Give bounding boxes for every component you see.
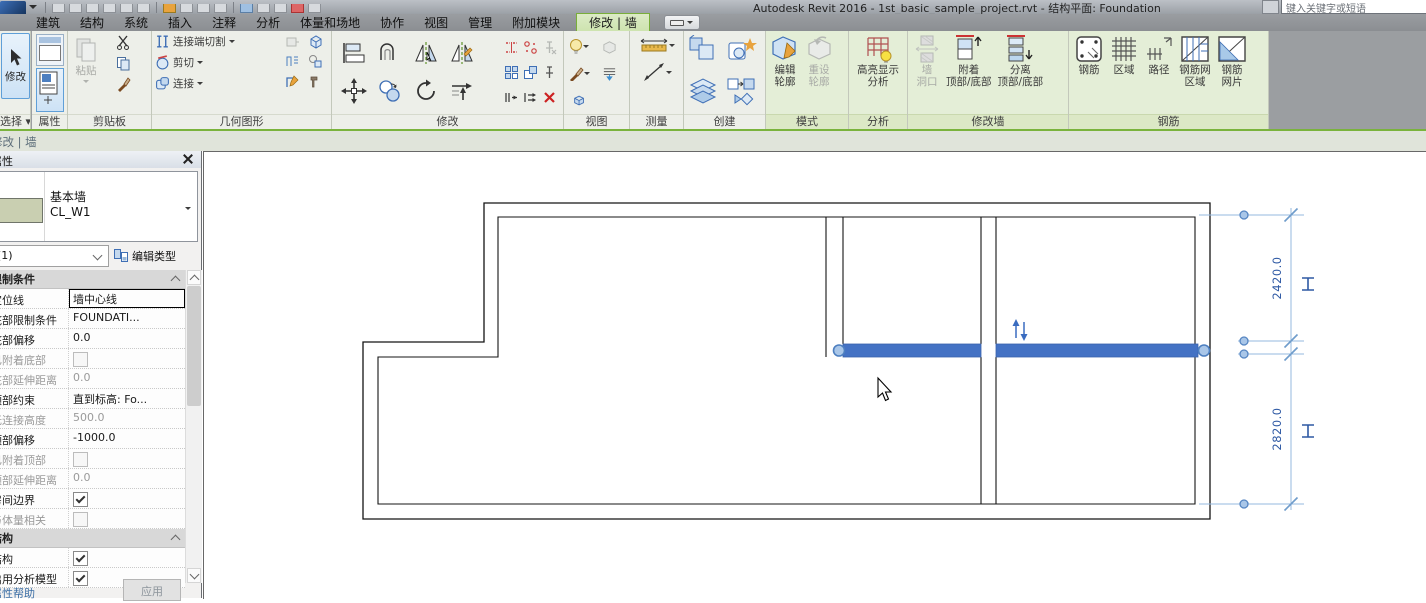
chevron-down-icon — [83, 80, 89, 86]
tab-4[interactable]: 注释 — [202, 13, 246, 33]
rebar-button[interactable]: 钢筋 — [1074, 34, 1104, 115]
panel-label-rebar[interactable]: 钢筋 — [1069, 114, 1268, 129]
ribbon-collapse-button[interactable] — [664, 15, 700, 30]
panel-mode: 编辑轮廓 重设轮廓 模式 — [766, 31, 849, 129]
unjoin-icon[interactable] — [308, 54, 323, 69]
chevron-down-icon — [197, 82, 203, 88]
ribbon-collapse-icon — [670, 20, 684, 26]
tab-0[interactable]: 建筑 — [26, 13, 70, 33]
property-value: 500.0 — [69, 409, 185, 428]
wall-end-grip[interactable] — [1199, 345, 1210, 356]
wall-opening-icon — [914, 34, 940, 64]
property-value[interactable] — [69, 548, 185, 567]
mirror-draw-axis-icon[interactable] — [449, 40, 475, 66]
search-go-button[interactable] — [1262, 0, 1279, 14]
panel-rebar: 钢筋 区域 路径 钢筋网区域 — [1069, 31, 1269, 129]
chevron-down-icon — [666, 71, 672, 77]
property-label: 底部偏移 — [0, 329, 69, 348]
properties-header[interactable]: 属性 — [0, 151, 201, 168]
fabric-area-button[interactable]: 钢筋网区域 — [1179, 34, 1211, 115]
chevron-down-icon — [687, 21, 693, 27]
wall-type-preview-swatch — [0, 198, 43, 223]
property-value — [69, 449, 185, 468]
plan-walls[interactable] — [363, 203, 1210, 519]
search-input[interactable]: 键入关键字或短语 — [1281, 0, 1426, 14]
tab-3[interactable]: 插入 — [158, 13, 202, 33]
create-group-icon[interactable] — [687, 75, 719, 107]
rebar-icon — [1074, 34, 1104, 64]
create-parts-icon[interactable] — [687, 35, 719, 67]
property-label: 无连接高度 — [0, 409, 69, 428]
hammer-icon[interactable] — [308, 74, 323, 89]
chevron-down-icon — [197, 61, 203, 67]
chevron-down-icon — [93, 251, 103, 261]
scroll-down-button[interactable] — [187, 568, 201, 583]
property-row: 与体量相关 — [0, 509, 185, 529]
type-family-name: 基本墙 — [50, 188, 86, 205]
detach-top-base-button[interactable]: 分离顶部/底部 — [998, 34, 1044, 115]
section-header[interactable]: 结构 — [0, 529, 185, 548]
dimension-grips[interactable] — [1240, 211, 1248, 508]
move-icon[interactable] — [341, 78, 367, 104]
copy-element-icon[interactable] — [377, 78, 403, 104]
checkbox — [73, 352, 88, 367]
property-value[interactable]: 墙中心线 — [69, 289, 185, 308]
edit-type-button[interactable]: 编辑类型 — [113, 245, 198, 267]
property-label: 顶部约束 — [0, 389, 69, 408]
chevron-down-icon — [229, 40, 235, 46]
property-row: 定位线墙中心线 — [0, 289, 185, 309]
chevron-down-icon — [669, 44, 675, 50]
panel-properties: 属性 — [32, 31, 68, 129]
scroll-up-button[interactable] — [187, 270, 201, 285]
align-icon[interactable] — [341, 40, 367, 66]
property-label: 底部限制条件 — [0, 309, 69, 328]
properties-scrollbar[interactable] — [185, 270, 202, 583]
chevron-down-icon — [583, 45, 589, 51]
checkbox[interactable] — [73, 551, 88, 566]
chevron-down-icon[interactable] — [185, 207, 191, 213]
panel-label-geometry[interactable]: 几何图形 — [152, 114, 331, 129]
panel-label-measure[interactable]: 测量 — [630, 114, 683, 129]
panel-label-select[interactable]: 选择 ▾ — [0, 115, 30, 128]
property-label: 已附着顶部 — [0, 449, 69, 468]
rebar-path-icon — [1144, 34, 1174, 64]
panel-label-analysis[interactable]: 分析 — [849, 114, 907, 129]
close-icon[interactable] — [183, 154, 193, 164]
property-row: 底部限制条件FOUNDATI... — [0, 309, 185, 329]
drawing-canvas[interactable]: 2420.0 2820.0 — [203, 151, 1426, 599]
cutaway-icon[interactable] — [602, 39, 617, 54]
create-similar-icon[interactable] — [725, 75, 757, 107]
cube-icon[interactable] — [308, 34, 323, 49]
property-row: 顶部约束直到标高: Fo... — [0, 389, 185, 409]
panel-create: 创建 — [684, 31, 766, 129]
wall-sweep-icon[interactable] — [285, 54, 300, 69]
tab-2[interactable]: 系统 — [114, 13, 158, 33]
attach-top-base-icon — [952, 34, 986, 64]
property-label: 顶部延伸距离 — [0, 469, 69, 488]
floor-plan: 2420.0 2820.0 — [204, 152, 1426, 599]
property-value[interactable]: 0.0 — [69, 329, 185, 348]
selection-box-icon[interactable] — [572, 93, 587, 108]
measure-button[interactable] — [639, 37, 675, 53]
dimension-annotation[interactable]: 2420.0 2820.0 — [1199, 208, 1314, 511]
trim-extend-corner-icon[interactable] — [449, 78, 475, 104]
property-value[interactable]: 直到标高: Fo... — [69, 389, 185, 408]
property-value[interactable]: -1000.0 — [69, 429, 185, 448]
tab-7[interactable]: 协作 — [370, 13, 414, 33]
panel-view: 视图 — [564, 31, 630, 129]
wall-opening-button[interactable]: 墙洞口 — [914, 34, 940, 115]
revit-logo[interactable] — [0, 1, 26, 14]
property-row: 底部延伸距离0.0 — [0, 369, 185, 389]
panel-measure: 测量 — [630, 31, 684, 129]
mirror-pick-axis-icon[interactable] — [413, 40, 439, 66]
modify-tool-button[interactable]: 修改 — [1, 33, 30, 99]
highlight-analysis-button[interactable]: 高亮显示分析 — [857, 34, 899, 115]
property-grid: 限制条件定位线墙中心线底部限制条件FOUNDATI...底部偏移0.0已附着底部… — [0, 270, 185, 588]
property-value: 0.0 — [69, 369, 185, 388]
tab-1[interactable]: 结构 — [70, 13, 114, 33]
property-row: 已附着底部 — [0, 349, 185, 369]
checkbox[interactable] — [73, 492, 88, 507]
cut-scissors-icon[interactable] — [116, 35, 131, 50]
tab-list: 建筑结构系统插入注释分析体量和场地协作视图管理附加模块 — [26, 13, 570, 33]
panel-analysis: 高亮显示分析 分析 — [849, 31, 908, 129]
qat-separator — [233, 2, 234, 13]
properties-window-button[interactable] — [36, 68, 64, 112]
chevron-down-icon — [584, 72, 590, 78]
array-icon[interactable] — [504, 65, 519, 80]
demolish-icon[interactable] — [285, 34, 300, 49]
properties-window-icon — [38, 71, 60, 107]
section-header[interactable]: 限制条件 — [0, 270, 185, 289]
split-element-icon[interactable] — [504, 40, 519, 55]
property-row: 底部偏移0.0 — [0, 329, 185, 349]
fabric-area-icon — [1179, 34, 1211, 64]
tab-5[interactable]: 分析 — [246, 13, 290, 33]
panel-label-mode[interactable]: 模式 — [766, 114, 848, 129]
override-graphics-button[interactable] — [569, 66, 590, 81]
split-with-gap-icon[interactable] — [523, 40, 538, 55]
rebar-area-icon — [1109, 34, 1139, 64]
brush-icon — [569, 66, 584, 81]
reset-profile-icon — [804, 34, 834, 64]
checkbox[interactable] — [73, 571, 88, 586]
type-name: CL_W1 — [50, 205, 91, 219]
join-end-cut-icon — [155, 34, 170, 49]
offset-icon[interactable] — [377, 40, 403, 66]
selection-filter-combo[interactable]: (1) — [0, 245, 109, 267]
panel-label-modify[interactable]: 修改 — [332, 114, 563, 129]
panel-label-view[interactable]: 视图 — [564, 114, 629, 129]
mode-bar-text: 修改 | 墙 — [0, 134, 37, 150]
panel-label-properties[interactable]: 属性 — [32, 114, 67, 129]
mode-bar: 修改 | 墙 — [0, 131, 1426, 151]
detach-top-base-icon — [1003, 34, 1037, 64]
panel-label-modify-wall[interactable]: 修改墙 — [908, 114, 1068, 129]
wall-end-grip[interactable] — [834, 345, 845, 356]
property-row: 房间边界 — [0, 489, 185, 509]
fabric-sheet-button[interactable]: 钢筋网片 — [1216, 34, 1248, 115]
cursor-arrow-icon — [8, 48, 23, 67]
measure-between-refs-button[interactable] — [642, 61, 672, 83]
rebar-area-button[interactable]: 区域 — [1109, 34, 1139, 115]
panel-label-clipboard[interactable]: 剪贴板 — [68, 114, 151, 129]
properties-panel: 属性 基本墙 CL_W1 (1) 编辑类型 限制条件定位线墙中心线底部限制条件F… — [0, 151, 202, 598]
panel-geometry: 连接端切割 剪切 连接 — [152, 31, 332, 129]
panel-clipboard: 粘贴 剪贴板 — [68, 31, 152, 129]
property-row: 顶部偏移-1000.0 — [0, 429, 185, 449]
panel-modify: 修改 — [332, 31, 564, 129]
delete-icon[interactable] — [542, 90, 557, 105]
property-label: 底部延伸距离 — [0, 369, 69, 388]
property-value — [69, 509, 185, 528]
measure-diagonal-icon — [642, 61, 666, 83]
property-value: 0.0 — [69, 469, 185, 488]
join-geometry-icon — [155, 76, 170, 91]
property-value[interactable] — [69, 489, 185, 508]
paste-icon — [74, 35, 98, 65]
copy-icon[interactable] — [116, 56, 131, 71]
property-value[interactable]: FOUNDATI... — [69, 309, 185, 328]
tab-6[interactable]: 体量和场地 — [290, 13, 370, 33]
property-label: 与体量相关 — [0, 509, 69, 528]
qat-separator — [156, 2, 157, 13]
trim-multi-icon[interactable] — [504, 90, 519, 105]
edit-profile-icon — [770, 34, 800, 64]
edit-type-icon — [113, 248, 129, 264]
edit-profile-button[interactable]: 编辑轮廓 — [770, 34, 800, 115]
property-label: 已附着底部 — [0, 349, 69, 368]
tab-8[interactable]: 视图 — [414, 13, 458, 33]
lightbulb-icon — [569, 38, 583, 56]
rotate-icon[interactable] — [413, 78, 439, 104]
qat-separator — [45, 2, 46, 13]
property-row: 结构 — [0, 548, 185, 568]
dimension-text-handles[interactable] — [1302, 278, 1314, 437]
property-label: 房间边界 — [0, 489, 69, 508]
scrollbar-thumb[interactable] — [187, 286, 201, 406]
match-type-brush-icon[interactable] — [116, 77, 131, 92]
tab-10[interactable]: 附加模块 — [502, 13, 570, 33]
profile-edit-icon[interactable] — [285, 74, 300, 89]
tab-9[interactable]: 管理 — [458, 13, 502, 33]
fabric-sheet-icon — [1216, 34, 1248, 64]
scale-icon[interactable] — [523, 65, 538, 80]
extend-multi-icon[interactable] — [523, 90, 538, 105]
panel-select: 修改 选择 ▾ — [0, 31, 31, 129]
create-assembly-icon[interactable] — [725, 35, 757, 67]
type-selector[interactable]: 基本墙 CL_W1 — [0, 171, 198, 242]
unpin-icon[interactable] — [542, 40, 557, 55]
reset-profile-button[interactable]: 重设轮廓 — [804, 34, 834, 115]
checkbox — [73, 452, 88, 467]
dimension-value-top[interactable]: 2420.0 — [1270, 256, 1284, 299]
cut-geometry-icon — [155, 55, 170, 70]
selected-wall[interactable] — [843, 344, 1198, 357]
property-row: 顶部延伸距离0.0 — [0, 469, 185, 489]
dimension-value-bottom[interactable]: 2820.0 — [1270, 407, 1284, 450]
ribbon: 修改 选择 ▾ 属性 粘贴 — [0, 31, 1426, 131]
property-label: 顶部偏移 — [0, 429, 69, 448]
panel-label-create[interactable]: 创建 — [684, 114, 765, 129]
mouse-cursor-icon — [878, 378, 891, 401]
wall-flip-arrows-icon[interactable] — [1013, 319, 1028, 341]
property-label: 定位线 — [0, 289, 69, 308]
checkbox — [73, 512, 88, 527]
properties-help-link[interactable]: 属性帮助 — [0, 585, 35, 601]
property-row: 已附着顶部 — [0, 449, 185, 469]
highlight-analysis-icon — [862, 34, 894, 64]
paste-button[interactable]: 粘贴 — [74, 35, 98, 86]
ruler-icon — [639, 37, 669, 53]
tab-modify-wall[interactable]: 修改 | 墙 — [576, 13, 650, 33]
thin-lines-icon[interactable] — [602, 66, 617, 81]
rebar-path-button[interactable]: 路径 — [1144, 34, 1174, 115]
panel-modify-wall: 墙洞口 附着顶部/底部 分离顶部/底部 修改墙 — [908, 31, 1069, 129]
property-label: 结构 — [0, 548, 69, 567]
attach-top-base-button[interactable]: 附着顶部/底部 — [946, 34, 992, 115]
pin-icon[interactable] — [542, 65, 557, 80]
property-value — [69, 349, 185, 368]
properties-icon[interactable] — [36, 34, 64, 66]
property-row: 无连接高度500.0 — [0, 409, 185, 429]
ribbon-tab-bar: 建筑结构系统插入注释分析体量和场地协作视图管理附加模块 修改 | 墙 — [0, 14, 1426, 31]
view-visibility-button[interactable] — [569, 38, 589, 56]
